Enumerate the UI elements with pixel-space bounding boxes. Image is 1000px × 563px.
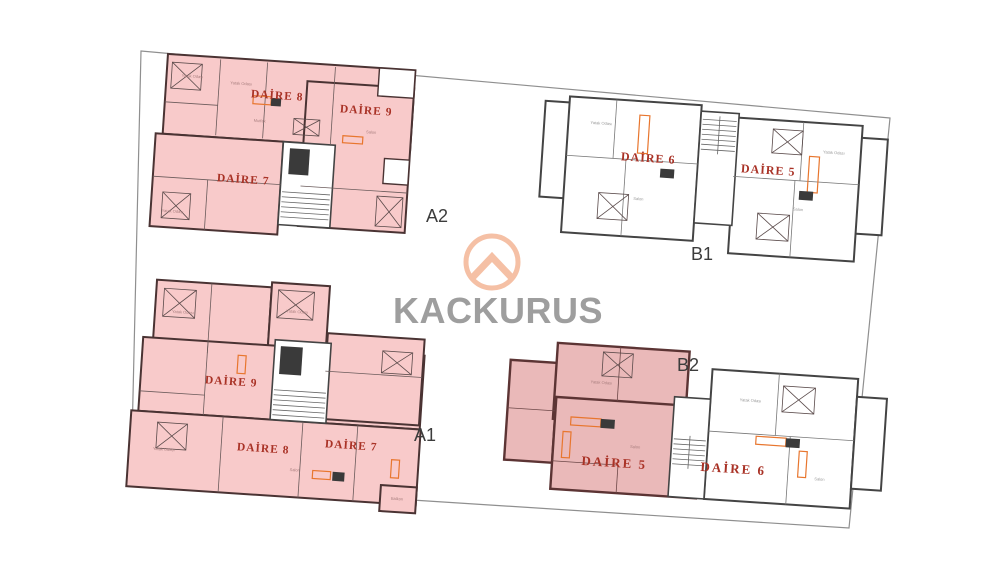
a1-right-wing <box>322 333 424 425</box>
svg-text:Salon: Salon <box>793 206 804 212</box>
unit-b1-daire6-area[interactable] <box>561 96 702 240</box>
floor-plan-sheet: Yatak Odası Yatak Odası Mutfak Yatak Oda… <box>0 0 1000 563</box>
building-code-a2: A2 <box>426 206 448 226</box>
unit-b2-daire6-area[interactable] <box>704 369 858 508</box>
elevator <box>279 346 303 375</box>
balcony-notch <box>378 68 416 98</box>
svg-text:Salon: Salon <box>289 467 300 473</box>
brand-name: KACKURUS <box>393 290 603 331</box>
building-a2: Yatak Odası Yatak Odası Mutfak Yatak Oda… <box>150 53 416 243</box>
b2-right-annex <box>851 397 887 491</box>
building-code-b1: B1 <box>691 244 713 264</box>
floor-plan-svg: Yatak Odası Yatak Odası Mutfak Yatak Oda… <box>0 0 1000 563</box>
svg-text:Salon: Salon <box>366 129 377 135</box>
stair-core <box>694 111 739 225</box>
building-code-b2: B2 <box>677 355 699 375</box>
svg-text:Balkon: Balkon <box>391 496 404 502</box>
svg-text:Salon: Salon <box>633 196 644 202</box>
unit-b1-daire5-area[interactable] <box>728 118 863 262</box>
b2-left-annex <box>504 360 559 463</box>
svg-text:Mutfak: Mutfak <box>254 118 266 124</box>
building-code-a1: A1 <box>414 425 436 445</box>
svg-text:Salon: Salon <box>814 476 825 482</box>
svg-text:Salon: Salon <box>630 444 641 450</box>
elevator <box>288 148 310 175</box>
balcony-notch <box>383 158 410 185</box>
